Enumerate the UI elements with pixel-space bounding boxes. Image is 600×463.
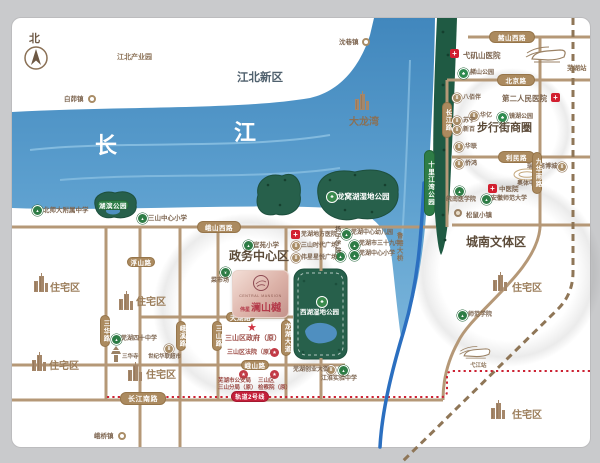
huayi-label: 华亿 <box>480 113 492 121</box>
pill-sanhua-road: 三华路 <box>100 315 110 347</box>
label-residential-3: 住宅区 <box>49 361 79 372</box>
sanshan-court-label: 三山区法院（原） <box>227 350 275 358</box>
yijiang-station-train-icon <box>458 344 492 363</box>
project-card: CENTRAL MANSION 伟星澜山樾 <box>232 270 289 318</box>
hualian-supermarket-label: 世纪华联超市 <box>148 354 181 361</box>
hualian-supermarket-icon: ¥ <box>164 344 174 354</box>
wuhu-station-train-icon <box>524 44 568 68</box>
wannan-medical-college-label: 皖南医学院 <box>446 197 476 205</box>
label-longwo-park: 龙窝湖湿地公园 <box>337 193 390 201</box>
qiaohong-icon: ¥ <box>454 159 464 169</box>
pill-hubin-park: 湖滨公园 <box>97 200 129 210</box>
baimao-town-label: 白茆镇 <box>64 96 84 104</box>
pill-limin-road: 利民路 <box>498 151 535 163</box>
vegetable-market-icon: ¥ <box>220 267 231 278</box>
dalongwan-building-icon <box>352 90 372 111</box>
zheshan-park-label: 赭山公园 <box>470 70 494 78</box>
project-emblem-icon <box>252 274 270 292</box>
label-residential-6: 住宅区 <box>512 410 542 421</box>
shifan-college-label: 师范学院 <box>468 312 492 320</box>
label-jiangbei-industrial-park: 江北产业园 <box>117 54 152 62</box>
label-residential-4: 住宅区 <box>146 370 176 381</box>
residential-building-6-icon <box>488 399 508 420</box>
songshu-town-label: 松鼠小镇 <box>466 212 492 220</box>
zheshan-park-icon: ♣ <box>458 68 469 79</box>
pill-eshan-west-road: 峨山西路 <box>197 221 241 233</box>
label-yangtze-char-2: 江 <box>234 121 256 145</box>
suning-label: 苏宁 <box>463 118 475 126</box>
pill-metro-line-2: 轨道2号线 <box>231 391 269 402</box>
wuhu-central-kindergarten-label: 芜湖中心幼儿园 <box>351 230 393 238</box>
anhui-normal-university-label: 安徽师范大学 <box>491 196 527 204</box>
pill-eshan-road: 峨山路 <box>241 360 269 370</box>
location-map: 北 白茆镇沈巷镇峨桥镇+弋矶山医院+第二人民医院+中医院+芜湖地方医院♣赭山公园… <box>0 0 600 463</box>
xinbai-icon: ¥ <box>452 125 462 135</box>
eqiao-town-icon <box>118 432 126 440</box>
bnu-affiliated-school-label: 北师大附属中学 <box>43 207 89 215</box>
wuhu-no40-school-label: 芜湖四十中学 <box>121 336 157 344</box>
project-brand-prefix: 伟星 <box>240 307 250 313</box>
chuangye-street-label: 芜湖创业大街 <box>293 367 329 375</box>
second-peoples-hospital-icon: + <box>551 93 560 102</box>
shidai-plaza-label: 三山时代广场 <box>301 243 337 251</box>
pill-fushan-road: 浮山路 <box>127 257 155 267</box>
xihu-park-marker-icon: ♣ <box>316 296 328 308</box>
project-name: 澜山樾 <box>251 303 281 314</box>
sanshan-government-label: 三山区政府（原） <box>225 334 281 343</box>
jianghuai-school-label: 江淮实验中学 <box>321 376 357 384</box>
sanshan-central-primary-label: 三山中心小学 <box>148 215 187 223</box>
label-xihu-park: 西湖湿地公园 <box>300 309 339 316</box>
weixing-plaza-icon: ¥ <box>291 253 301 263</box>
residential-building-3-icon <box>29 351 49 372</box>
label-residential-1: 住宅区 <box>50 283 80 294</box>
pill-longhu-avenue: 龙湖大道 <box>281 320 291 356</box>
poi-overlay: 白茆镇沈巷镇峨桥镇+弋矶山医院+第二人民医院+中医院+芜湖地方医院♣赭山公园♣镜… <box>0 0 600 463</box>
wuhu-central-primary-label: 芜湖中心小学 <box>359 251 395 259</box>
shenxiang-town-icon <box>362 38 370 46</box>
residential-building-4-icon <box>125 361 145 382</box>
hualian-icon: ¥ <box>454 142 464 152</box>
difang-hospital-label: 芜湖地方医院 <box>301 232 337 240</box>
pill-changjiang-south-road: 长江南路 <box>120 392 166 405</box>
label-lugang-bridge: 鲁港大桥 <box>395 232 402 262</box>
baimao-town-icon <box>88 95 96 103</box>
pill-jiuhua-south-road: 九华南路 <box>532 152 542 194</box>
eqiao-town-label: 峨桥镇 <box>94 433 114 441</box>
residential-building-1-icon <box>31 272 51 293</box>
pill-exi-road: 峨溪路 <box>176 321 186 351</box>
project-name-cn: 伟星澜山樾 <box>240 299 281 314</box>
residential-building-2-icon <box>116 290 136 311</box>
ruifeng-mall-icon: ¥ <box>557 162 567 172</box>
sanshan-central-primary-icon: ▲ <box>137 213 148 224</box>
weixing-plaza-label: 伟星星悦广场 <box>301 255 337 263</box>
second-peoples-hospital-label: 第二人民医院 <box>502 94 547 104</box>
shidai-plaza-icon: ¥ <box>291 241 301 251</box>
label-residential-5: 住宅区 <box>512 283 542 294</box>
label-wuhu-station: 芜湖站 <box>567 65 587 72</box>
xinbai-label: 新百 <box>463 127 475 135</box>
wannan-medical-college-icon: ▲ <box>454 186 465 197</box>
sanshan-government-icon: ★ <box>247 321 257 334</box>
qiaohong-label: 侨鸿 <box>465 161 477 169</box>
difang-hospital-icon: + <box>291 230 300 239</box>
label-yangzi-college: 扬子学院 <box>333 226 340 254</box>
label-walking-street-area: 步行街商圈 <box>477 122 532 134</box>
label-residential-2: 住宅区 <box>136 297 166 308</box>
residential-building-5-icon <box>490 271 510 292</box>
label-yangtze-char-1: 长 <box>95 134 117 158</box>
jinghu-park-label: 镜湖公园 <box>509 114 533 122</box>
yijishan-hospital-icon: + <box>450 49 459 58</box>
label-dalongwan: 大龙湾 <box>349 117 379 128</box>
project-name-en: CENTRAL MANSION <box>239 294 282 298</box>
tcm-hospital-label: 中医院 <box>499 186 519 194</box>
label-chengnan-area: 城南文体区 <box>466 236 526 249</box>
babaiban-icon: ¥ <box>452 93 462 103</box>
label-jiangbei-new-district: 江北新区 <box>237 72 283 85</box>
label-yijiang-station: 弋江站 <box>470 363 487 369</box>
songshu-town-icon <box>454 209 462 217</box>
pill-sanshan-road: 三山路 <box>212 321 222 351</box>
tcm-hospital-icon: + <box>488 184 497 193</box>
babaiban-label: 八佰伴 <box>463 95 481 103</box>
bnu-affiliated-school-icon: ▲ <box>32 205 43 216</box>
yijishan-hospital-label: 弋矶山医院 <box>463 51 501 61</box>
sanhua-temple-icon <box>110 346 122 362</box>
hualian-label: 华联 <box>465 144 477 152</box>
pill-zheshan-west-road: 赭山西路 <box>489 31 535 43</box>
pill-changjiang-road: 长江路 <box>442 102 452 138</box>
pill-shili-jiangwan-park: 十里江湾公园 <box>424 150 435 216</box>
shenxiang-town-label: 沈巷镇 <box>339 39 359 47</box>
jianghuai-school-icon: ▲ <box>338 365 349 376</box>
label-govt-center-area: 政务中心区 <box>229 250 289 263</box>
pill-beijing-road: 北京路 <box>497 74 535 86</box>
vegetable-market-label: 菜市场 <box>211 278 229 286</box>
shifan-college-icon: ▲ <box>457 310 468 321</box>
